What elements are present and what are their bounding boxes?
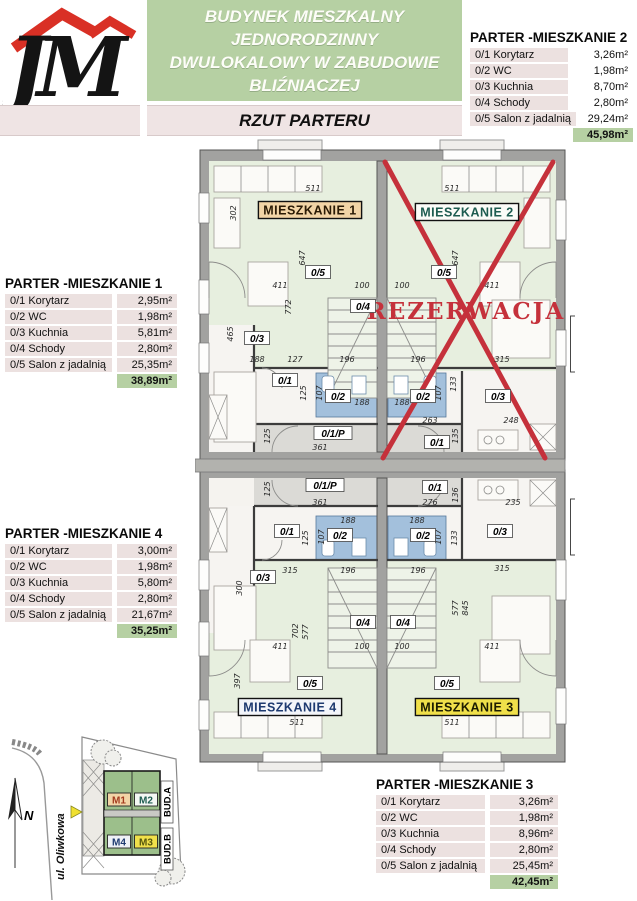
room-label: 0/3 xyxy=(491,392,505,403)
dimension-label: 845 xyxy=(461,600,470,615)
dimension-label: 263 xyxy=(422,416,437,425)
room-label: 0/5 xyxy=(303,679,317,690)
room-area: 8,96m² xyxy=(490,827,558,841)
dimension-label: 235 xyxy=(505,498,520,507)
total-row: 42,45m² xyxy=(376,875,558,889)
site-plan: N ul. Oliwkowa M1M2M4M3BUD.ABUD.B xyxy=(0,728,196,901)
area-row: 0/5 Salon z jadalnią21,67m² xyxy=(5,608,177,622)
room-area: 5,81m² xyxy=(117,326,177,340)
dimension-label: 100 xyxy=(354,642,369,651)
room-name: 0/3 Kuchnia xyxy=(5,576,112,590)
room-name: 0/2 WC xyxy=(470,64,568,78)
apartment-label: MIESZKANIE 1 xyxy=(263,204,357,218)
room-label: 0/2 xyxy=(416,531,430,542)
total-area: 45,98m² xyxy=(573,128,633,142)
subtitle-bar: RZUT PARTERU xyxy=(147,105,462,136)
dimension-label: 411 xyxy=(272,281,287,290)
room-area: 29,24m² xyxy=(581,112,633,126)
room-area: 1,98m² xyxy=(117,310,177,324)
room-name: 0/4 Schody xyxy=(470,96,568,110)
total-area: 42,45m² xyxy=(490,875,558,889)
room-name: 0/5 Salon z jadalnią xyxy=(5,608,112,622)
area-row: 0/3 Kuchnia5,81m² xyxy=(5,326,177,340)
apartment-label: MIESZKANIE 4 xyxy=(243,701,337,715)
room-area: 1,98m² xyxy=(117,560,177,574)
room-label: 0/1 xyxy=(278,376,292,387)
area-row: 0/1 Korytarz3,00m² xyxy=(5,544,177,558)
room-label: 0/3 xyxy=(493,527,507,538)
dimension-label: 188 xyxy=(394,398,409,407)
room-area: 1,98m² xyxy=(490,811,558,825)
dimension-label: 127 xyxy=(287,355,303,364)
room-label: 0/2 xyxy=(333,531,347,542)
dimension-label: 361 xyxy=(312,498,327,507)
drawing-subtitle: RZUT PARTERU xyxy=(239,111,370,131)
room-name: 0/3 Kuchnia xyxy=(470,80,568,94)
area-row: 0/5 Salon z jadalnią25,45m² xyxy=(376,859,558,873)
subtitle-bar-left xyxy=(0,105,140,136)
street-name: ul. Oliwkowa xyxy=(55,813,67,880)
room-area: 25,45m² xyxy=(490,859,558,873)
street-curb xyxy=(12,742,40,754)
dimension-label: 100 xyxy=(394,642,409,651)
title-line: DWULOKALOWY W ZABUDOWIE xyxy=(170,51,440,74)
total-area: 38,89m² xyxy=(117,374,177,388)
table-title: PARTER -MIESZKANIE 2 xyxy=(470,30,633,45)
north-label: N xyxy=(24,808,34,823)
dimension-label: 107 xyxy=(317,528,326,544)
area-row: 0/4 Schody2,80m² xyxy=(5,592,177,606)
apartment-label: MIESZKANIE 2 xyxy=(420,206,514,220)
room-area: 2,80m² xyxy=(490,843,558,857)
dimension-label: 411 xyxy=(272,642,287,651)
room-name: 0/2 WC xyxy=(5,310,112,324)
dimension-label: 196 xyxy=(340,566,355,575)
dimension-label: 125 xyxy=(299,385,308,400)
table-title: PARTER -MIESZKANIE 4 xyxy=(5,526,177,541)
dimension-label: 133 xyxy=(450,530,459,545)
floor-plan-page: JM BUDYNEK MIESZKALNY JEDNORODZINNY DWUL… xyxy=(0,0,637,901)
dimension-label: 702 xyxy=(291,623,300,638)
room-area: 2,95m² xyxy=(117,294,177,308)
site-building-label: BUD.B xyxy=(163,834,174,864)
area-row: 0/3 Kuchnia8,96m² xyxy=(376,827,558,841)
company-logo: JM xyxy=(2,2,142,112)
driveway xyxy=(83,760,104,868)
floor-plan-drawing: REZERWACJA 51151130264764741110010041177… xyxy=(195,136,575,778)
dimension-label: 125 xyxy=(263,428,272,443)
dimension-label: 300 xyxy=(235,580,244,595)
title-line: BLIŹNIACZEJ xyxy=(170,74,440,97)
site-unit-label: M1 xyxy=(112,796,126,807)
total-row: 35,25m² xyxy=(5,624,177,638)
room-label: 0/4 xyxy=(396,618,410,629)
area-row: 0/1 Korytarz3,26m² xyxy=(376,795,558,809)
dimension-label: 100 xyxy=(394,281,409,290)
total-row: 38,89m² xyxy=(5,374,177,388)
room-area: 3,26m² xyxy=(573,48,633,62)
room-label: 0/5 xyxy=(311,268,325,279)
dimension-label: 276 xyxy=(422,498,437,507)
room-area: 2,80m² xyxy=(117,592,177,606)
logo-text: JM xyxy=(2,20,130,112)
room-name: 0/1 Korytarz xyxy=(470,48,568,62)
room-label: 0/1 xyxy=(430,438,444,449)
dimension-label: 196 xyxy=(410,355,425,364)
room-area: 2,80m² xyxy=(573,96,633,110)
dimension-label: 136 xyxy=(451,487,460,502)
dimension-label: 248 xyxy=(503,416,518,425)
party-wall xyxy=(195,459,565,472)
dimension-label: 772 xyxy=(284,299,293,314)
room-name: 0/4 Schody xyxy=(5,342,112,356)
dimension-label: 361 xyxy=(312,443,327,452)
room-label: 0/1/P xyxy=(313,481,337,492)
dimension-label: 133 xyxy=(449,376,458,391)
area-row: 0/3 Kuchnia8,70m² xyxy=(470,80,633,94)
room-name: 0/1 Korytarz xyxy=(376,795,485,809)
room-label: 0/5 xyxy=(437,268,451,279)
room-name: 0/2 WC xyxy=(376,811,485,825)
title-line: JEDNORODZINNY xyxy=(170,28,440,51)
area-row: 0/4 Schody2,80m² xyxy=(5,342,177,356)
table-title: PARTER -MIESZKANIE 1 xyxy=(5,276,177,291)
room-label: 0/1 xyxy=(428,483,442,494)
dimension-label: 100 xyxy=(354,281,369,290)
dimension-label: 196 xyxy=(339,355,354,364)
area-table-m3: PARTER -MIESZKANIE 30/1 Korytarz3,26m²0/… xyxy=(376,777,558,889)
area-row: 0/1 Korytarz3,26m² xyxy=(470,48,633,62)
building-label: BUD.B xyxy=(573,508,575,546)
dimension-label: 135 xyxy=(451,428,460,443)
dimension-label: 397 xyxy=(233,672,242,688)
dimension-label: 647 xyxy=(298,249,307,265)
room-name: 0/4 Schody xyxy=(376,843,485,857)
site-building-label: BUD.A xyxy=(163,787,174,817)
room-label: 0/5 xyxy=(440,679,454,690)
dimension-label: 465 xyxy=(226,326,235,341)
dimension-label: 411 xyxy=(484,642,499,651)
apartment-label: MIESZKANIE 3 xyxy=(420,701,514,715)
site-unit-label: M4 xyxy=(112,838,126,849)
area-row: 0/2 WC1,98m² xyxy=(376,811,558,825)
dimension-label: 196 xyxy=(410,566,425,575)
dimension-label: 411 xyxy=(484,281,499,290)
room-name: 0/3 Kuchnia xyxy=(376,827,485,841)
dimension-label: 511 xyxy=(289,718,304,727)
room-name: 0/1 Korytarz xyxy=(5,544,112,558)
dimension-label: 511 xyxy=(305,184,320,193)
room-label: 0/2 xyxy=(416,392,430,403)
room-area: 2,80m² xyxy=(117,342,177,356)
title-line: BUDYNEK MIESZKALNY xyxy=(170,5,440,28)
dimension-label: 188 xyxy=(249,355,264,364)
dimension-label: 511 xyxy=(444,184,459,193)
room-name: 0/5 Salon z jadalnią xyxy=(5,358,112,372)
room-area: 3,26m² xyxy=(490,795,558,809)
reservation-text: REZERWACJA xyxy=(367,298,566,325)
room-label: 0/1 xyxy=(280,527,294,538)
site-unit-label: M2 xyxy=(139,796,153,807)
area-row: 0/1 Korytarz2,95m² xyxy=(5,294,177,308)
room-area: 25,35m² xyxy=(117,358,177,372)
room-label: 0/4 xyxy=(356,302,370,313)
area-row: 0/2 WC1,98m² xyxy=(5,310,177,324)
table-title: PARTER -MIESZKANIE 3 xyxy=(376,777,558,792)
area-table-m1: PARTER -MIESZKANIE 10/1 Korytarz2,95m²0/… xyxy=(5,276,177,388)
room-label: 0/2 xyxy=(331,392,345,403)
dimension-label: 577 xyxy=(301,623,310,639)
dimension-label: 315 xyxy=(494,355,509,364)
area-row: 0/5 Salon z jadalnią25,35m² xyxy=(5,358,177,372)
dimension-label: 577 xyxy=(451,599,460,615)
project-title: BUDYNEK MIESZKALNY JEDNORODZINNY DWULOKA… xyxy=(147,0,462,101)
room-name: 0/4 Schody xyxy=(5,592,112,606)
dimension-label: 647 xyxy=(451,249,460,265)
dimension-label: 188 xyxy=(340,516,355,525)
area-row: 0/4 Schody2,80m² xyxy=(376,843,558,857)
room-area: 1,98m² xyxy=(573,64,633,78)
area-table-m4: PARTER -MIESZKANIE 40/1 Korytarz3,00m²0/… xyxy=(5,526,177,638)
room-name: 0/3 Kuchnia xyxy=(5,326,112,340)
north-arrow: N xyxy=(8,778,34,868)
area-row: 0/2 WC1,98m² xyxy=(470,64,633,78)
room-label: 0/3 xyxy=(250,334,264,345)
room-name: 0/5 Salon z jadalnią xyxy=(470,112,576,126)
area-row: 0/3 Kuchnia5,80m² xyxy=(5,576,177,590)
room-area: 21,67m² xyxy=(117,608,177,622)
dimension-label: 511 xyxy=(444,718,459,727)
dimension-label: 315 xyxy=(282,566,297,575)
entrance-arrow xyxy=(71,806,82,818)
dimension-label: 107 xyxy=(315,384,324,400)
room-area: 8,70m² xyxy=(573,80,633,94)
room-area: 3,00m² xyxy=(117,544,177,558)
dimension-label: 125 xyxy=(263,481,272,496)
room-name: 0/2 WC xyxy=(5,560,112,574)
room-label: 0/3 xyxy=(256,573,270,584)
total-area: 35,25m² xyxy=(117,624,177,638)
street-edge xyxy=(12,748,52,900)
room-label: 0/4 xyxy=(356,618,370,629)
site-unit-label: M3 xyxy=(139,838,153,849)
dimension-label: 188 xyxy=(409,516,424,525)
area-row: 0/5 Salon z jadalnią29,24m² xyxy=(470,112,633,126)
room-name: 0/1 Korytarz xyxy=(5,294,112,308)
area-row: 0/4 Schody2,80m² xyxy=(470,96,633,110)
room-label: 0/1/P xyxy=(321,429,345,440)
dimension-label: 302 xyxy=(229,205,238,220)
dimension-label: 188 xyxy=(354,398,369,407)
building-label: BUD.A xyxy=(573,325,575,363)
dimension-label: 125 xyxy=(301,530,310,545)
area-row: 0/2 WC1,98m² xyxy=(5,560,177,574)
area-table-m2: PARTER -MIESZKANIE 20/1 Korytarz3,26m²0/… xyxy=(470,30,633,142)
room-area: 5,80m² xyxy=(117,576,177,590)
dimension-label: 315 xyxy=(494,564,509,573)
room-name: 0/5 Salon z jadalnią xyxy=(376,859,485,873)
